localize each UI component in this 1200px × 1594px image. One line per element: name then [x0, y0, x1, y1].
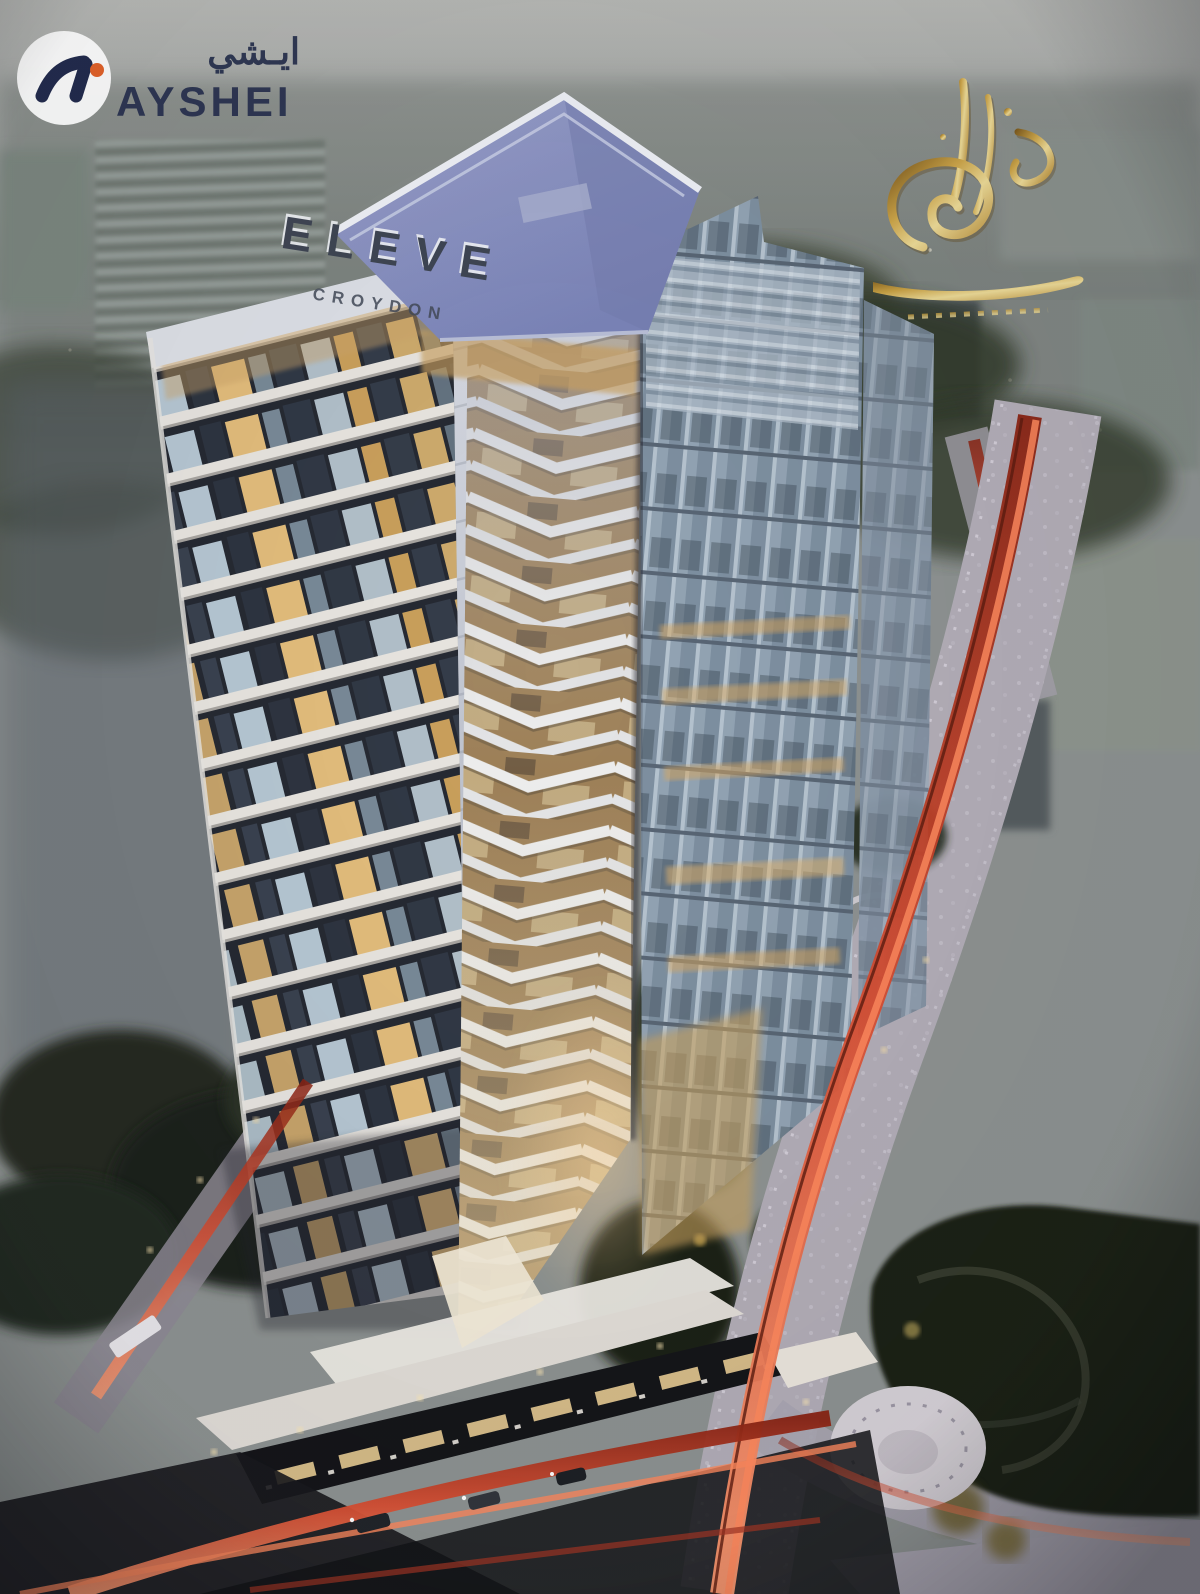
vignette-overlay — [0, 0, 1200, 1594]
architectural-render: ELEVE ELEVE CROYDON — [0, 0, 1200, 1594]
